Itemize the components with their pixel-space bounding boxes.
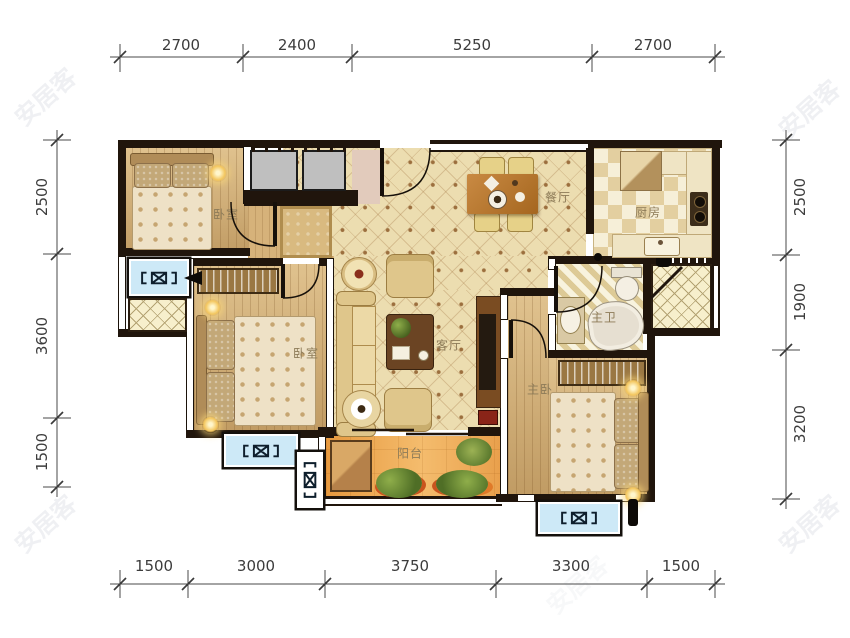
side-table xyxy=(341,257,377,291)
ac-unit xyxy=(129,259,189,296)
wall-left-lower xyxy=(118,256,126,337)
sofa-armrest xyxy=(336,291,376,306)
bed2-lamp xyxy=(204,299,221,316)
watermark: 安居客 xyxy=(6,58,83,132)
wall-bedroom2-top-a xyxy=(186,258,283,266)
table-bowl xyxy=(515,192,525,202)
room-label-living: 客厅 xyxy=(436,337,462,354)
watermark: 安居客 xyxy=(770,485,847,559)
dim-bottom-1: 1500 xyxy=(122,557,186,575)
table-cup xyxy=(418,350,429,361)
wall-balcony-stub-right xyxy=(468,427,502,436)
room-label-kitchen: 厨房 xyxy=(635,204,661,221)
sink-faucet xyxy=(658,240,663,245)
bedroom2-wardrobe xyxy=(197,268,279,294)
bed1-lamp xyxy=(209,164,227,182)
bed2-pillow xyxy=(206,372,235,422)
coat-hooks xyxy=(252,146,350,152)
dim-right-2: 1900 xyxy=(791,270,809,334)
dim-top-1: 2700 xyxy=(149,36,213,54)
dim-left-2: 3600 xyxy=(33,304,51,368)
ac-symbol xyxy=(139,270,179,286)
vanity-basin xyxy=(560,306,581,334)
stove-burner xyxy=(694,211,706,223)
window-balcony xyxy=(322,496,502,506)
dim-top-3: 5250 xyxy=(440,36,504,54)
bed2-pillow xyxy=(206,320,235,370)
toilet-bowl xyxy=(615,276,639,301)
wall-terrace-bottom xyxy=(647,328,720,336)
room-label-bath: 主卫 xyxy=(591,309,617,326)
entry-cabinet xyxy=(250,150,298,191)
balcony-flower xyxy=(456,438,492,466)
dim-bottom-5: 1500 xyxy=(649,557,713,575)
side-table xyxy=(342,390,381,428)
room-label-bedroom1: 卧室 xyxy=(213,206,239,223)
dim-top-2: 2400 xyxy=(265,36,329,54)
room-label-bedroom2: 卧室 xyxy=(293,345,319,362)
master-headboard xyxy=(638,392,649,492)
wall-master-left-a xyxy=(500,294,508,320)
room-label-master: 主卧 xyxy=(527,381,553,398)
watermark: 安居客 xyxy=(6,485,83,559)
dim-right-3: 3200 xyxy=(791,392,809,456)
ac-symbol xyxy=(241,443,281,459)
table-papers xyxy=(392,346,410,360)
kitchen-fridge xyxy=(620,151,662,191)
window-terrace-right xyxy=(711,266,720,330)
floor-plan: 安居客 安居客 安居客 安居客 安居客 安居客 xyxy=(0,0,850,638)
wall-left-upper xyxy=(118,140,126,258)
wall-bath-left-a xyxy=(548,258,556,270)
dim-top-4: 2700 xyxy=(621,36,685,54)
dining-chair xyxy=(507,212,533,232)
balcony-cabinet xyxy=(330,440,372,492)
terrace-hatch xyxy=(651,264,712,330)
ac-unit xyxy=(224,434,298,467)
room-label-dining: 餐厅 xyxy=(545,189,571,206)
wall-kitchen-left xyxy=(586,148,594,234)
ac-symbol xyxy=(302,458,318,502)
balcony-plant xyxy=(376,468,422,498)
table-plant xyxy=(391,318,411,338)
armchair xyxy=(386,254,434,298)
wall-top-kitchen xyxy=(588,140,722,148)
wall-nook-top xyxy=(500,288,556,296)
flue-hatch xyxy=(128,298,187,332)
wall-bath-right xyxy=(643,262,651,334)
watermark: 安居客 xyxy=(770,70,847,144)
tv-screen xyxy=(479,314,496,390)
speaker xyxy=(478,410,498,425)
bed2-lamp xyxy=(202,416,219,433)
stove-burner xyxy=(694,196,706,208)
ac-symbol xyxy=(559,510,599,526)
bed1-blanket xyxy=(132,186,212,250)
dim-bottom-3: 3750 xyxy=(378,557,442,575)
table-plate xyxy=(488,190,507,209)
room-label-balcony: 阳台 xyxy=(397,445,423,462)
foyer-rug xyxy=(280,206,332,258)
ac-unit xyxy=(538,502,620,534)
dim-left-3: 1500 xyxy=(33,420,51,484)
entry-cabinet xyxy=(302,150,346,191)
bed2-blanket xyxy=(234,316,316,426)
balcony-plant xyxy=(436,470,488,498)
entry-cabinet-base xyxy=(244,190,358,206)
armchair xyxy=(384,388,432,432)
table-cup xyxy=(512,180,518,186)
window-top-dining xyxy=(430,140,590,152)
wall-master-left-b xyxy=(500,358,508,502)
pipe-shaft xyxy=(628,499,638,526)
dim-left-1: 2500 xyxy=(33,165,51,229)
wall-right-upper xyxy=(712,140,720,270)
bed1-pillow xyxy=(172,163,209,188)
dim-right-1: 2500 xyxy=(791,165,809,229)
master-blanket xyxy=(550,392,616,492)
bed1-pillow xyxy=(134,163,171,188)
window-master-bottom-a xyxy=(518,495,534,501)
wall-bedroom2-right xyxy=(326,258,334,430)
dim-bottom-2: 3000 xyxy=(224,557,288,575)
dim-bottom-4: 3300 xyxy=(539,557,603,575)
ac-unit-vertical xyxy=(297,452,323,508)
dining-chair xyxy=(474,212,500,232)
wall-bath-bottom xyxy=(548,350,655,358)
master-lamp xyxy=(624,379,642,397)
